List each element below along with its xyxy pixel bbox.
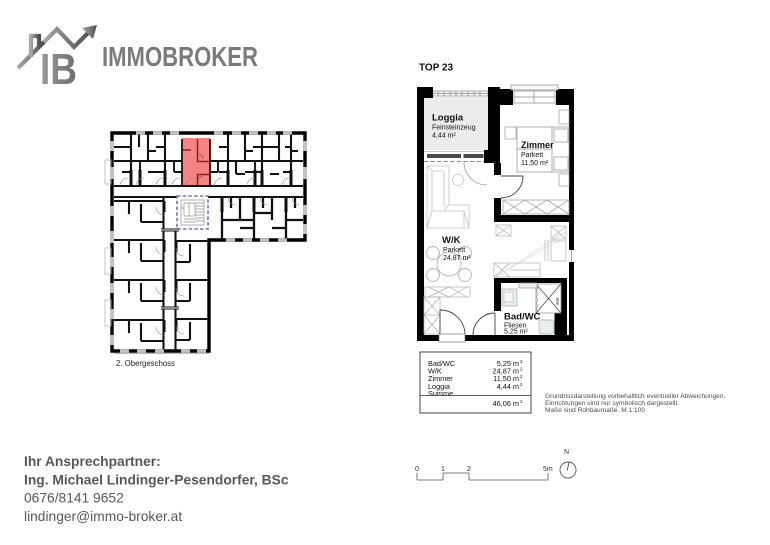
svg-text:5m: 5m: [543, 466, 553, 473]
svg-text:IB: IB: [40, 45, 77, 94]
svg-text:Einrichtungen sind nur symboli: Einrichtungen sind nur symbolisch darges…: [545, 400, 679, 407]
svg-text:24,87 m²: 24,87 m²: [443, 255, 471, 262]
svg-text:TOP 23: TOP 23: [419, 63, 454, 74]
svg-text:4,44 m²: 4,44 m²: [432, 133, 456, 140]
svg-text:lindinger@immo-broker.at: lindinger@immo-broker.at: [24, 509, 182, 524]
svg-text:2: 2: [467, 466, 471, 473]
svg-text:Parkett: Parkett: [521, 152, 543, 159]
svg-text:Ihr Ansprechpartner:: Ihr Ansprechpartner:: [24, 454, 161, 469]
svg-text:900: 900: [555, 297, 560, 305]
svg-text:Zimmer: Zimmer: [521, 140, 554, 150]
svg-text:Feinsteinzeug: Feinsteinzeug: [432, 125, 476, 132]
svg-text:IMMOBROKER: IMMOBROKER: [102, 41, 258, 72]
svg-text:0676/8141 9652: 0676/8141 9652: [24, 491, 124, 506]
svg-text:2: 2: [520, 367, 523, 372]
svg-text:2: 2: [520, 399, 523, 404]
svg-text:Parkett: Parkett: [443, 247, 465, 254]
svg-text:11,50 m²: 11,50 m²: [521, 160, 549, 167]
svg-text:2: 2: [520, 359, 523, 364]
svg-text:2. Obergeschoss: 2. Obergeschoss: [116, 359, 175, 368]
svg-text:Bad/WC: Bad/WC: [504, 312, 541, 323]
svg-text:N: N: [564, 449, 569, 456]
svg-text:2: 2: [520, 382, 523, 387]
svg-text:1: 1: [441, 466, 445, 473]
svg-text:Summe: Summe: [428, 389, 453, 398]
svg-text:Maße sind Rohbaumaße. M 1:100: Maße sind Rohbaumaße. M 1:100: [545, 407, 645, 414]
svg-text:0: 0: [415, 466, 419, 473]
svg-text:Ing. Michael Lindinger-Pesendo: Ing. Michael Lindinger-Pesendorfer, BSc: [24, 473, 289, 488]
svg-text:Loggia: Loggia: [432, 113, 464, 124]
svg-text:2: 2: [520, 374, 523, 379]
svg-text:Grundrissdarstellung vorbehalt: Grundrissdarstellung vorbehaltlich event…: [545, 393, 726, 400]
svg-text:46,06 m: 46,06 m: [493, 399, 519, 408]
svg-text:5,25 m²: 5,25 m²: [504, 329, 528, 336]
svg-text:W/K: W/K: [442, 235, 461, 246]
svg-text:4,44 m: 4,44 m: [497, 382, 519, 391]
